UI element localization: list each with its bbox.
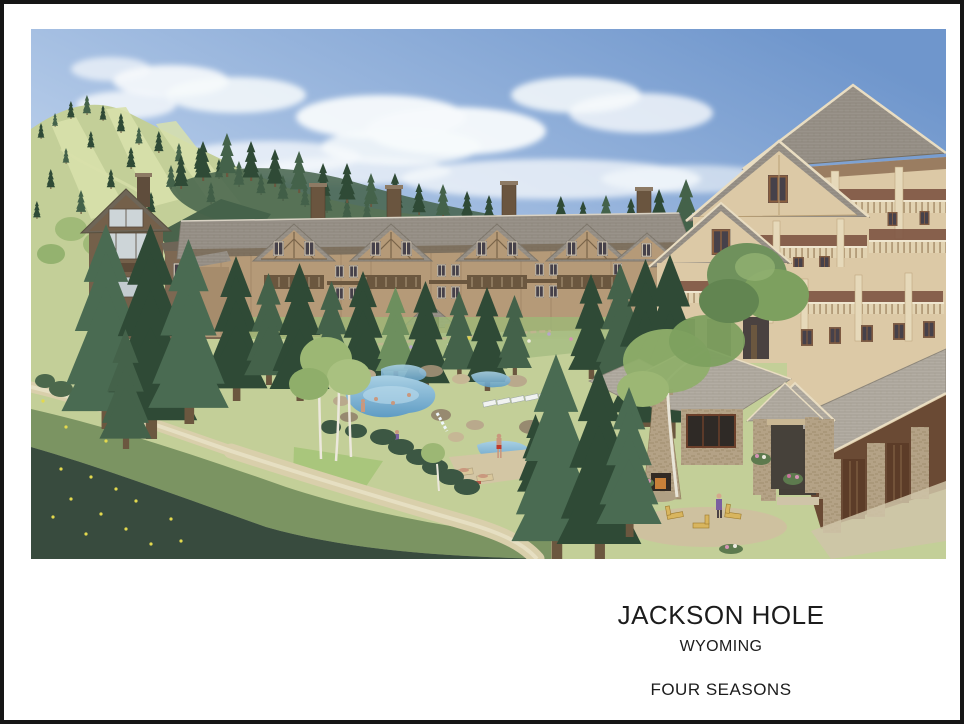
brochure-page: JACKSON HOLE WYOMING FOUR SEASONS xyxy=(0,0,964,724)
rendering-image xyxy=(31,29,946,559)
location-title: JACKSON HOLE xyxy=(501,602,941,628)
brand-name: FOUR SEASONS xyxy=(501,681,941,698)
pavilion-window xyxy=(687,415,735,447)
caption-block: JACKSON HOLE WYOMING FOUR SEASONS xyxy=(501,602,941,698)
resort-rendering xyxy=(31,29,946,559)
state-subtitle: WYOMING xyxy=(501,639,941,655)
